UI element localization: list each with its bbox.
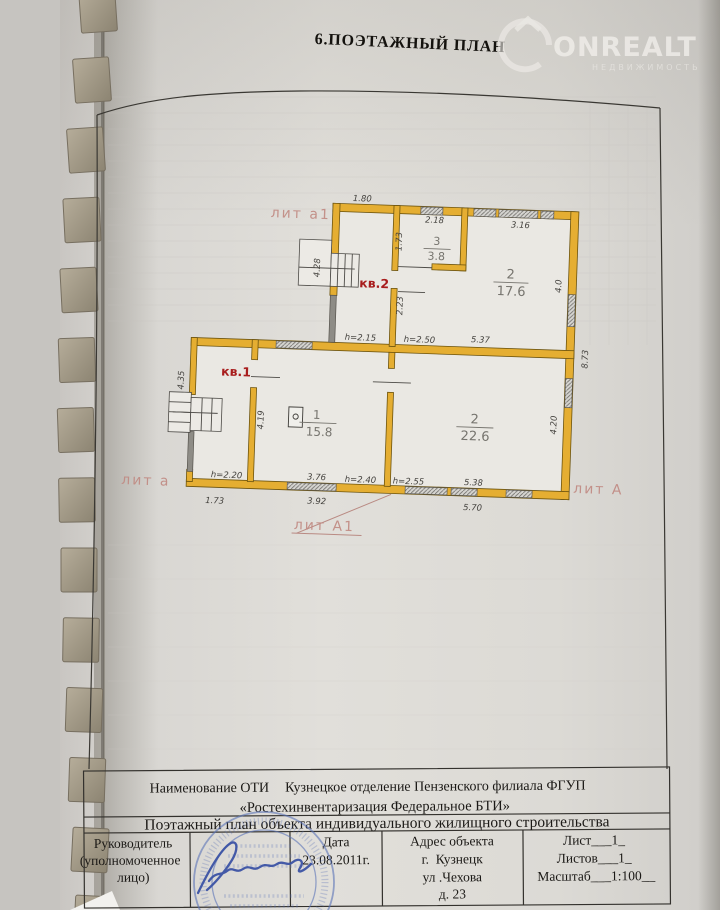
svg-text:Масштаб___1:100__: Масштаб___1:100__ xyxy=(537,868,655,884)
svg-text:5.38: 5.38 xyxy=(464,478,484,489)
svg-text:3.16: 3.16 xyxy=(511,220,531,231)
room-number: 1 xyxy=(313,408,321,422)
svg-text:Адрес объекта: Адрес объекта xyxy=(410,833,494,849)
stairs-lower-icon xyxy=(168,392,222,434)
svg-text:Дата: Дата xyxy=(323,834,350,849)
svg-text:23.08.2011г.: 23.08.2011г. xyxy=(302,852,370,867)
flat-label-kv2: кв.2 xyxy=(359,275,389,291)
room-number: 2 xyxy=(506,267,515,282)
svg-text:д. 23: д. 23 xyxy=(439,886,466,901)
doc-type: Поэтажный план объекта индивидуального ж… xyxy=(144,813,609,833)
page-edge-shadow xyxy=(698,0,720,910)
photographed-document-page: 6.ПОЭТАЖНЫЙ ПЛАН ONREALT НЕДВИЖИМОСТЬ xyxy=(0,0,720,910)
flat-label-kv1: кв.1 xyxy=(221,363,251,379)
svg-text:3.76: 3.76 xyxy=(307,473,327,484)
svg-text:Руководитель: Руководитель xyxy=(94,835,173,851)
liter-label-a1: лит а1 xyxy=(270,205,331,223)
svg-text:h=2.40: h=2.40 xyxy=(345,475,377,486)
svg-text:4.19: 4.19 xyxy=(256,410,267,429)
svg-text:4.28: 4.28 xyxy=(313,258,324,278)
room-number: 2 xyxy=(470,412,479,427)
svg-text:h=2.15: h=2.15 xyxy=(345,333,377,344)
room-area: 3.8 xyxy=(427,250,445,264)
liter-label-A: лит А xyxy=(573,481,624,499)
svg-text:ул .Чехова: ул .Чехова xyxy=(423,869,483,884)
svg-text:лит А1: лит А1 xyxy=(294,517,356,535)
cold-wall-segment xyxy=(187,431,194,471)
svg-text:h=2.50: h=2.50 xyxy=(403,335,435,346)
liter-label-a: лит а xyxy=(121,472,171,490)
room-number: 3 xyxy=(433,235,440,248)
svg-text:2.18: 2.18 xyxy=(425,215,445,226)
svg-text:4.20: 4.20 xyxy=(549,415,560,434)
org-line: Наименование ОТИКузнецкое отделение Пенз… xyxy=(150,779,586,797)
svg-text:5.37: 5.37 xyxy=(471,335,491,346)
svg-text:h=2.20: h=2.20 xyxy=(211,470,243,481)
room-area: 17.6 xyxy=(496,284,525,300)
stove-icon xyxy=(288,407,303,427)
svg-text:8.73: 8.73 xyxy=(580,350,591,369)
svg-text:5.70: 5.70 xyxy=(463,503,482,514)
svg-text:4.0: 4.0 xyxy=(554,279,564,293)
watermark-tagline: НЕДВИЖИМОСТЬ xyxy=(592,63,701,72)
svg-text:h=2.55: h=2.55 xyxy=(393,477,425,488)
room-area: 22.6 xyxy=(460,429,489,445)
svg-text:1.80: 1.80 xyxy=(353,194,372,205)
svg-text:(уполномоченное: (уполномоченное xyxy=(80,852,181,868)
document-canvas: 6.ПОЭТАЖНЫЙ ПЛАН ONREALT НЕДВИЖИМОСТЬ xyxy=(0,0,720,910)
svg-text:лицо): лицо) xyxy=(117,870,150,885)
svg-text:3.92: 3.92 xyxy=(307,497,326,508)
svg-text:г. Кузнецк: г. Кузнецк xyxy=(421,851,483,866)
svg-text:1.73: 1.73 xyxy=(394,232,405,251)
room-area: 15.8 xyxy=(306,424,333,439)
svg-text:4.35: 4.35 xyxy=(177,370,188,389)
svg-text:2.23: 2.23 xyxy=(395,296,406,315)
cold-wall-segment xyxy=(329,295,337,342)
watermark-brand: ONREALT xyxy=(553,32,697,63)
svg-text:1.73: 1.73 xyxy=(205,496,224,507)
svg-text:Листов___1_: Листов___1_ xyxy=(557,850,632,866)
svg-text:Лист___1_: Лист___1_ xyxy=(563,832,625,847)
